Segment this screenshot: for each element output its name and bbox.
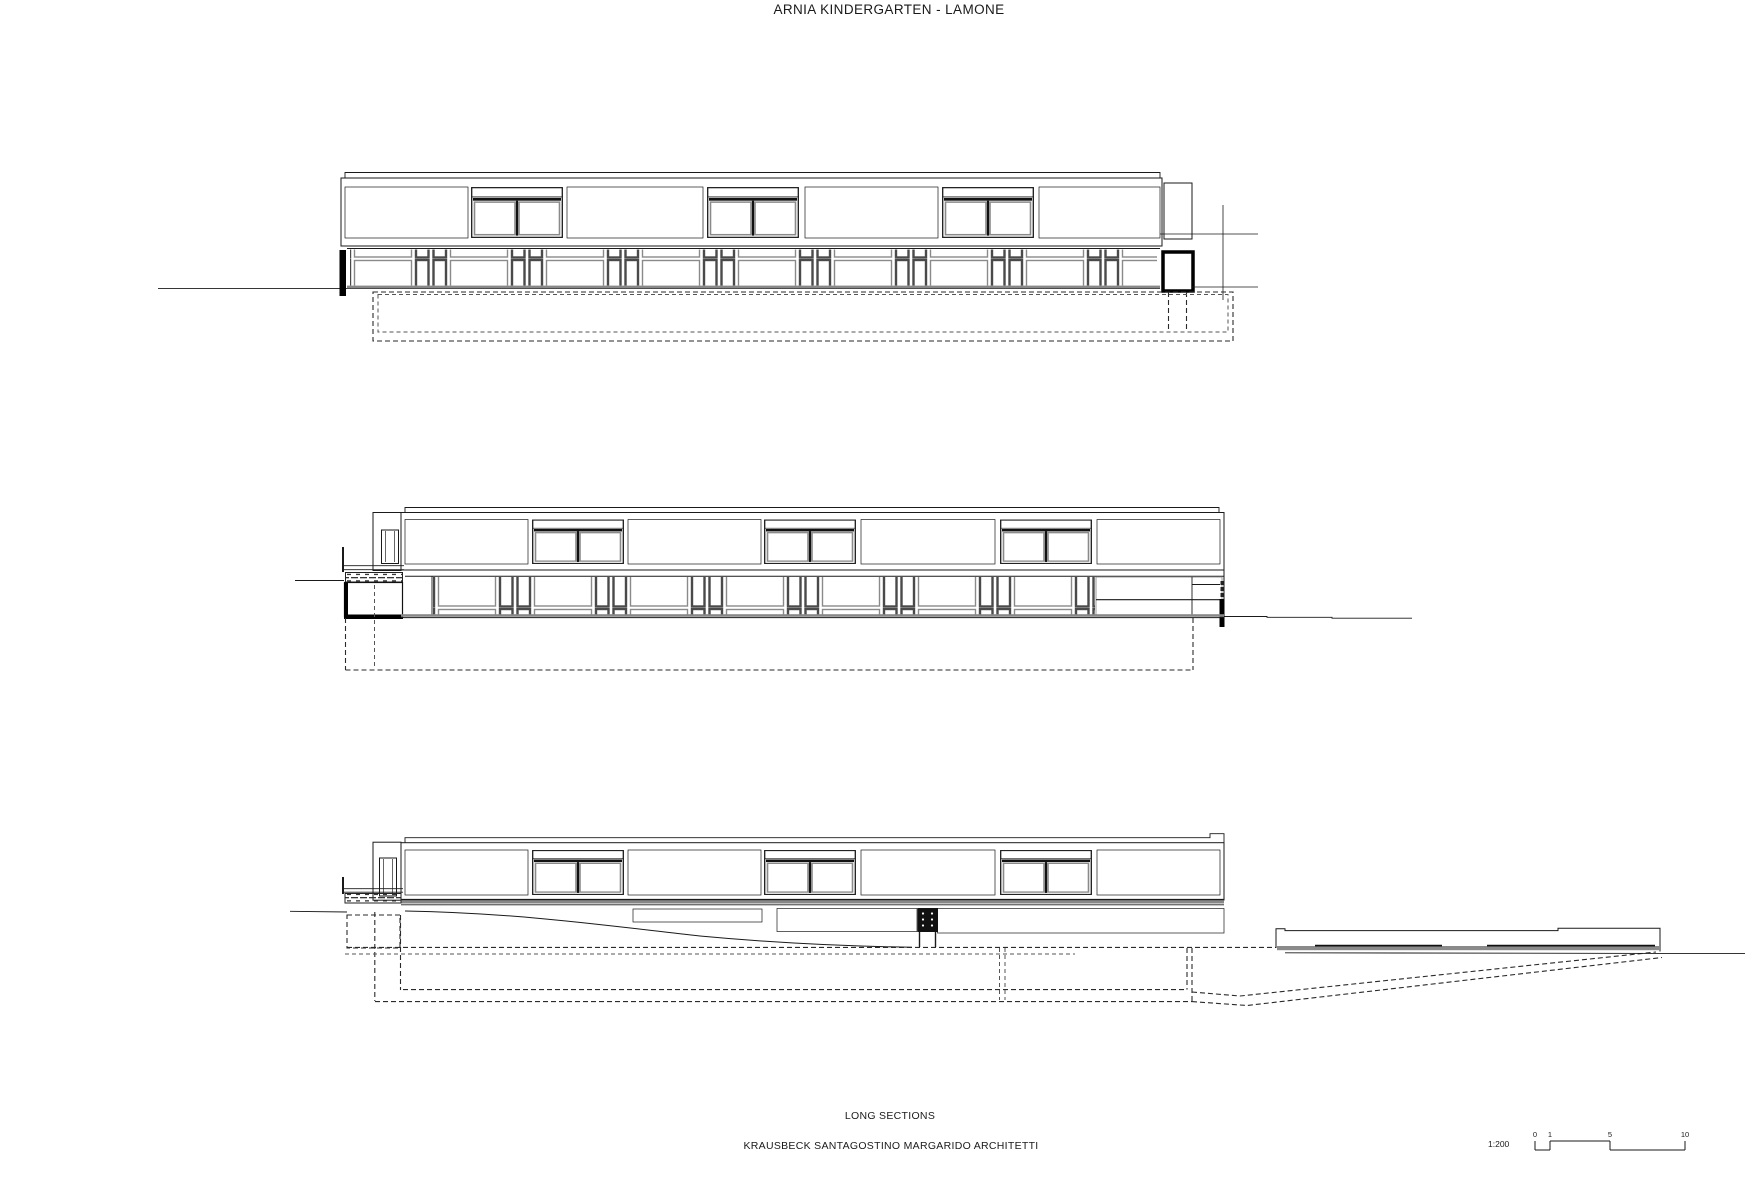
drawing-type-label: LONG SECTIONS — [845, 1110, 935, 1122]
architectural-drawing: ARNIA KINDERGARTEN - LAMONE — [0, 0, 1750, 1200]
section-3-walkway-canopy — [1276, 928, 1745, 953]
section-cut-box — [1163, 252, 1193, 291]
upper-window — [708, 188, 799, 238]
ramp-outline — [1192, 952, 1656, 996]
drawing-sheet: ARNIA KINDERGARTEN - LAMONE — [0, 0, 1750, 1200]
cut-wall — [1220, 599, 1225, 627]
upper-window — [1001, 520, 1092, 563]
section-3-basement-outline — [345, 912, 1662, 1006]
floor-slab — [347, 286, 1160, 289]
section-1-upper-facade — [341, 173, 1162, 247]
lattice-strip — [938, 909, 1225, 934]
section-1-stair-tower — [1160, 183, 1258, 330]
scale-ratio-label: 1:200 — [1488, 1139, 1510, 1149]
entry-door — [382, 530, 399, 564]
scale-tick-label: 0 — [1533, 1130, 1537, 1139]
upper-window — [533, 851, 624, 895]
terrace-opening — [1096, 577, 1222, 616]
entry-door — [380, 858, 397, 896]
ramp-outline — [1192, 958, 1662, 1006]
floor-slab — [401, 614, 1224, 617]
scale-bar: 1:200 0 1 5 10 — [1488, 1130, 1689, 1150]
page-title: ARNIA KINDERGARTEN - LAMONE — [773, 2, 1004, 17]
upper-window — [472, 188, 563, 238]
lattice-strip — [777, 909, 917, 932]
walkway-slab — [1277, 946, 1660, 950]
balcony-slab — [345, 894, 401, 904]
ground-line-right — [1285, 953, 1745, 954]
section-3-lower-level — [633, 908, 1224, 947]
floor-slab — [401, 901, 1224, 904]
scale-tick-label: 1 — [1548, 1130, 1552, 1139]
section-3-upper-facade — [401, 834, 1224, 905]
section-2-entry-tower — [373, 513, 401, 571]
section-cut-box — [345, 583, 403, 617]
section-3-entry-tower — [373, 842, 401, 900]
section-1-basement-outline — [373, 292, 1233, 341]
upper-window — [1001, 851, 1092, 895]
firm-name-label: KRAUSBECK SANTAGOSTINO MARGARIDO ARCHITE… — [743, 1140, 1038, 1152]
glazing-band — [433, 577, 1095, 615]
lattice-strip — [633, 909, 762, 922]
scale-tick-label: 5 — [1608, 1130, 1612, 1139]
section-2-drawing — [295, 508, 1412, 671]
cut-wall — [340, 250, 347, 296]
section-2-lower-facade — [401, 576, 1225, 627]
cut-pillar — [918, 908, 939, 932]
upper-window — [765, 520, 856, 563]
upper-window — [943, 188, 1034, 238]
section-2-basement-outline — [346, 618, 1194, 670]
section-1-lower-facade — [340, 249, 1161, 297]
upper-window — [533, 520, 624, 563]
section-3-ground-line — [290, 911, 912, 947]
section-3-drawing — [290, 834, 1745, 1006]
glazing-band — [350, 250, 1157, 286]
ground-slope — [405, 911, 912, 947]
section-1-drawing — [158, 173, 1258, 342]
upper-window — [765, 851, 856, 895]
scale-tick-label: 10 — [1681, 1130, 1689, 1139]
balcony-slab — [346, 573, 403, 583]
